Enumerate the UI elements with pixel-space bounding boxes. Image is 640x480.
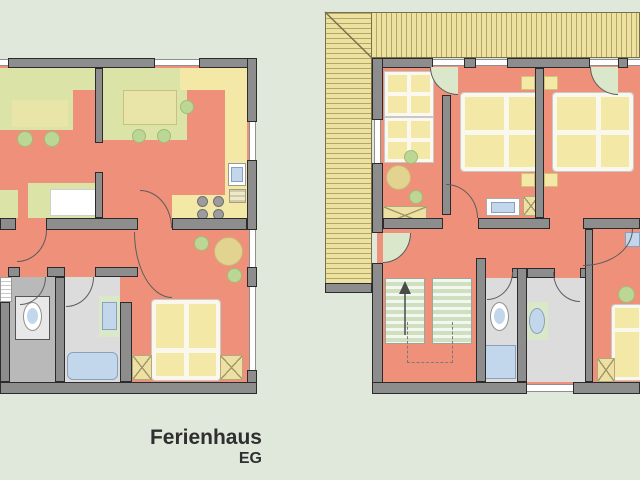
nightstand: [544, 173, 558, 187]
chair: [409, 190, 423, 204]
double-bed: [152, 300, 220, 380]
stool: [44, 131, 60, 147]
window: [155, 59, 199, 66]
toilet-bowl: [494, 308, 505, 324]
wall: [507, 58, 590, 68]
wall: [583, 218, 640, 229]
window: [374, 120, 381, 163]
nightstand: [521, 173, 535, 187]
nightstand: [521, 76, 535, 90]
wall: [120, 302, 132, 382]
double-bed: [553, 93, 633, 171]
wall: [464, 58, 476, 68]
sofa-bed-mattress: [50, 189, 98, 216]
window: [433, 59, 464, 66]
window: [527, 384, 573, 392]
washbasin: [102, 302, 117, 330]
roof-overhang-top: [325, 12, 640, 58]
wall: [8, 58, 155, 68]
wall: [247, 267, 257, 287]
window: [249, 230, 256, 267]
stove-burner: [213, 196, 224, 207]
wardrobe: [132, 355, 152, 380]
wall: [0, 218, 16, 230]
wall: [478, 218, 550, 229]
stool: [17, 131, 33, 147]
wardrobe: [220, 355, 243, 380]
wall: [55, 277, 65, 382]
window: [628, 59, 640, 66]
toilet-bowl: [27, 308, 38, 324]
bathtub: [67, 352, 118, 380]
shower: [484, 345, 516, 379]
bed: [612, 305, 640, 380]
wall: [372, 163, 383, 233]
wall: [372, 263, 383, 388]
caption: Ferienhaus EG: [58, 426, 262, 468]
wall: [47, 267, 65, 277]
wall: [476, 258, 486, 382]
balcony-parapet: [325, 283, 372, 293]
plan-title: Ferienhaus: [58, 426, 262, 449]
wall: [0, 382, 257, 394]
wall: [383, 218, 443, 229]
sideboard: [0, 190, 18, 218]
wall: [172, 218, 247, 230]
double-bed: [461, 93, 541, 171]
wall: [618, 58, 628, 68]
chair: [194, 236, 209, 251]
plan-ground-floor: [0, 0, 320, 480]
plan-upper-floor: [320, 0, 640, 480]
round-table: [386, 165, 411, 190]
wall: [8, 267, 20, 277]
single-bed: [385, 72, 433, 116]
window: [249, 287, 256, 370]
wall: [95, 68, 103, 143]
wall: [517, 268, 527, 382]
sofa-seat: [12, 100, 68, 127]
chair: [157, 129, 171, 143]
floorplan-canvas: Ferienhaus EG: [0, 0, 640, 480]
chair: [404, 150, 418, 164]
wall: [372, 58, 383, 120]
floor-label: EG: [58, 449, 262, 468]
entrance-steps: [0, 277, 12, 302]
wall: [46, 218, 138, 230]
wall: [573, 382, 640, 394]
round-table: [214, 237, 243, 266]
dishwasher: [229, 189, 246, 203]
chair: [132, 129, 146, 143]
chair: [618, 286, 635, 303]
chair: [227, 268, 242, 283]
roof-overhang-left: [325, 12, 372, 285]
wardrobe: [597, 358, 615, 382]
washbasin: [529, 308, 545, 334]
wall: [95, 172, 103, 218]
nightstand: [544, 76, 558, 90]
kitchen-sink-basin: [231, 167, 243, 182]
stairs-headroom-line: [407, 322, 453, 363]
wall: [0, 302, 10, 382]
wall: [372, 382, 527, 394]
window: [0, 59, 8, 66]
window: [590, 59, 618, 66]
wall: [95, 267, 138, 277]
stove-burner: [197, 196, 208, 207]
wall: [247, 58, 257, 122]
dining-table: [123, 90, 177, 125]
wall: [247, 160, 257, 230]
wall: [535, 68, 544, 218]
window: [249, 122, 256, 160]
washbasin: [491, 202, 515, 213]
wall: [527, 268, 555, 278]
chair: [180, 100, 194, 114]
window: [476, 59, 507, 66]
